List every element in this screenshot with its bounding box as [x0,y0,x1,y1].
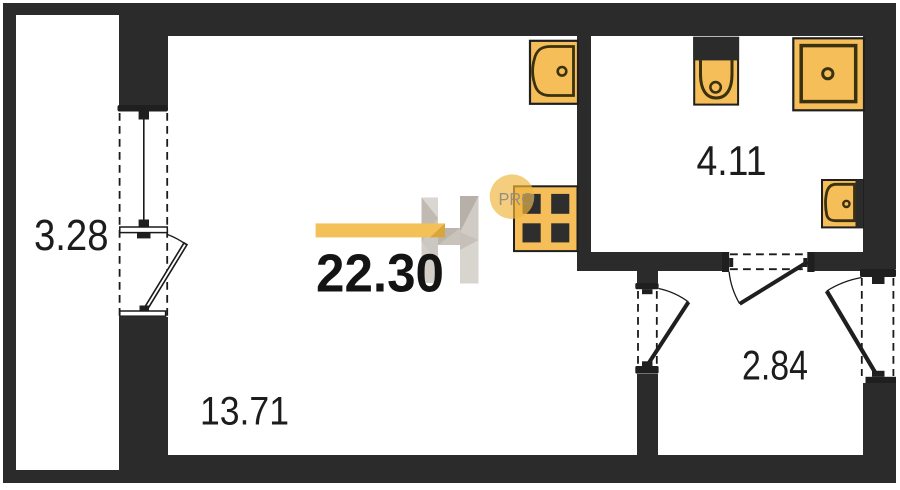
svg-text:22.30: 22.30 [316,245,444,304]
svg-text:2.84: 2.84 [742,342,808,389]
svg-text:PRO: PRO [499,189,535,209]
svg-text:3.28: 3.28 [34,211,109,260]
svg-text:4.11: 4.11 [697,137,767,184]
svg-text:13.71: 13.71 [200,390,289,434]
